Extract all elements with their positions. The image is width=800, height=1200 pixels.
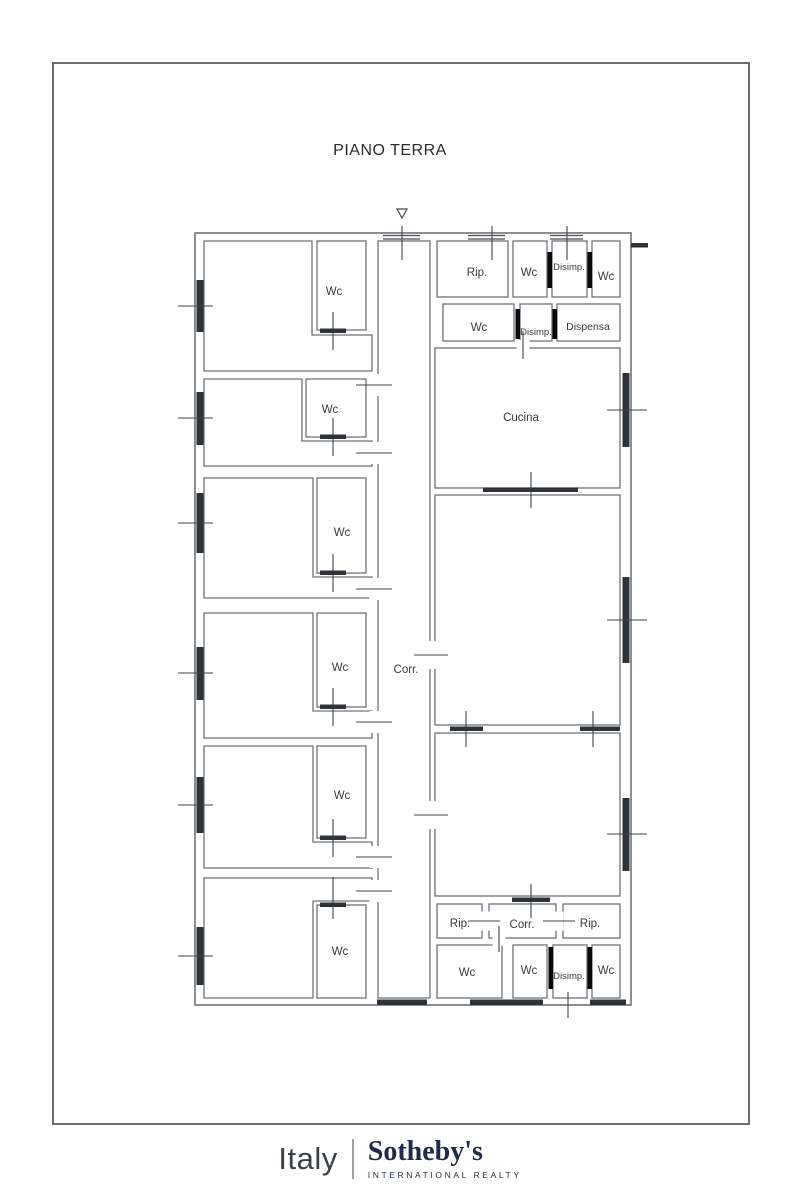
floor-plan-drawing: Wc Wc Wc Wc Wc Wc Corr. Rip. Wc Disimp. … — [0, 0, 800, 1200]
label-wc-bottom-2: Wc — [521, 965, 538, 977]
label-wc-4: Wc — [332, 662, 349, 674]
label-wc-top-2: Wc — [598, 271, 615, 283]
label-disimp-mid: Disimp. — [520, 327, 552, 338]
room-large-b — [435, 733, 620, 896]
label-cucina: Cucina — [503, 412, 539, 424]
label-wc-2: Wc — [322, 404, 339, 416]
brand-region: Italy — [278, 1141, 337, 1177]
label-corridor: Corr. — [394, 664, 419, 676]
room-large-a — [435, 495, 620, 725]
label-dispensa: Dispensa — [566, 321, 610, 333]
label-rip-top: Rip. — [467, 267, 487, 279]
footer-brand: Italy Sotheby's INTERNATIONAL REALTY — [0, 1138, 800, 1180]
room-3-wc — [317, 478, 366, 573]
brand-subtitle: INTERNATIONAL REALTY — [368, 1170, 522, 1180]
corridor — [378, 241, 430, 998]
label-corr-bottom: Corr. — [510, 919, 535, 931]
label-wc-top-1: Wc — [521, 267, 538, 279]
label-wc-6: Wc — [332, 946, 349, 958]
brand-name: Sotheby's — [368, 1138, 483, 1166]
brand-logo: Sotheby's INTERNATIONAL REALTY — [368, 1138, 522, 1180]
entrance-marker-icon — [397, 209, 407, 218]
label-disimp-bottom: Disimp. — [553, 971, 585, 982]
label-wc-bottom-1: Wc — [459, 967, 476, 979]
label-rip-bottom-2: Rip. — [580, 918, 600, 930]
label-wc-1: Wc — [326, 286, 343, 298]
right-rooms — [435, 241, 620, 998]
label-disimp-top: Disimp. — [553, 262, 585, 273]
label-wc-5: Wc — [334, 790, 351, 802]
label-wc-mid: Wc — [471, 322, 488, 334]
label-wc-3: Wc — [334, 527, 351, 539]
left-rooms — [204, 241, 372, 998]
brand-divider — [352, 1139, 354, 1179]
room-4-wc — [317, 613, 366, 707]
room-wc-top-2 — [592, 241, 620, 297]
top-windows — [383, 236, 583, 240]
label-wc-bottom-3: Wc — [598, 965, 615, 977]
label-rip-bottom-1: Rip. — [450, 918, 470, 930]
floorplan-page: PIANO TERRA — [0, 0, 800, 1200]
